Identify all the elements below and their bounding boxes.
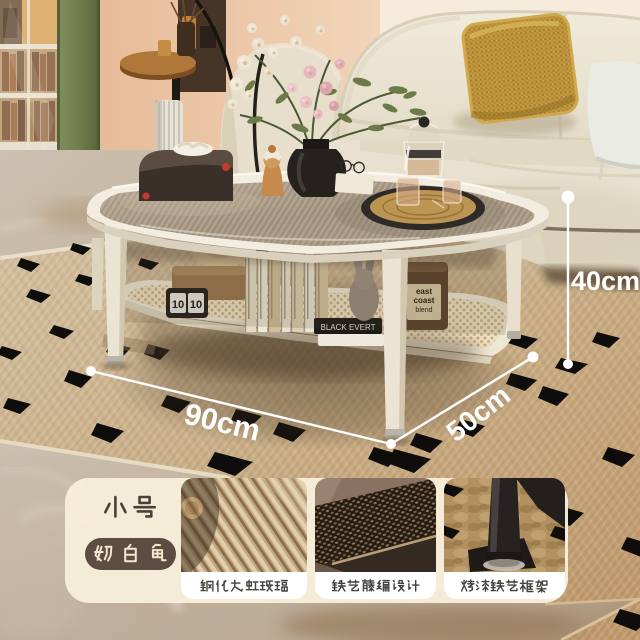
svg-text:40cm: 40cm [571,266,640,296]
